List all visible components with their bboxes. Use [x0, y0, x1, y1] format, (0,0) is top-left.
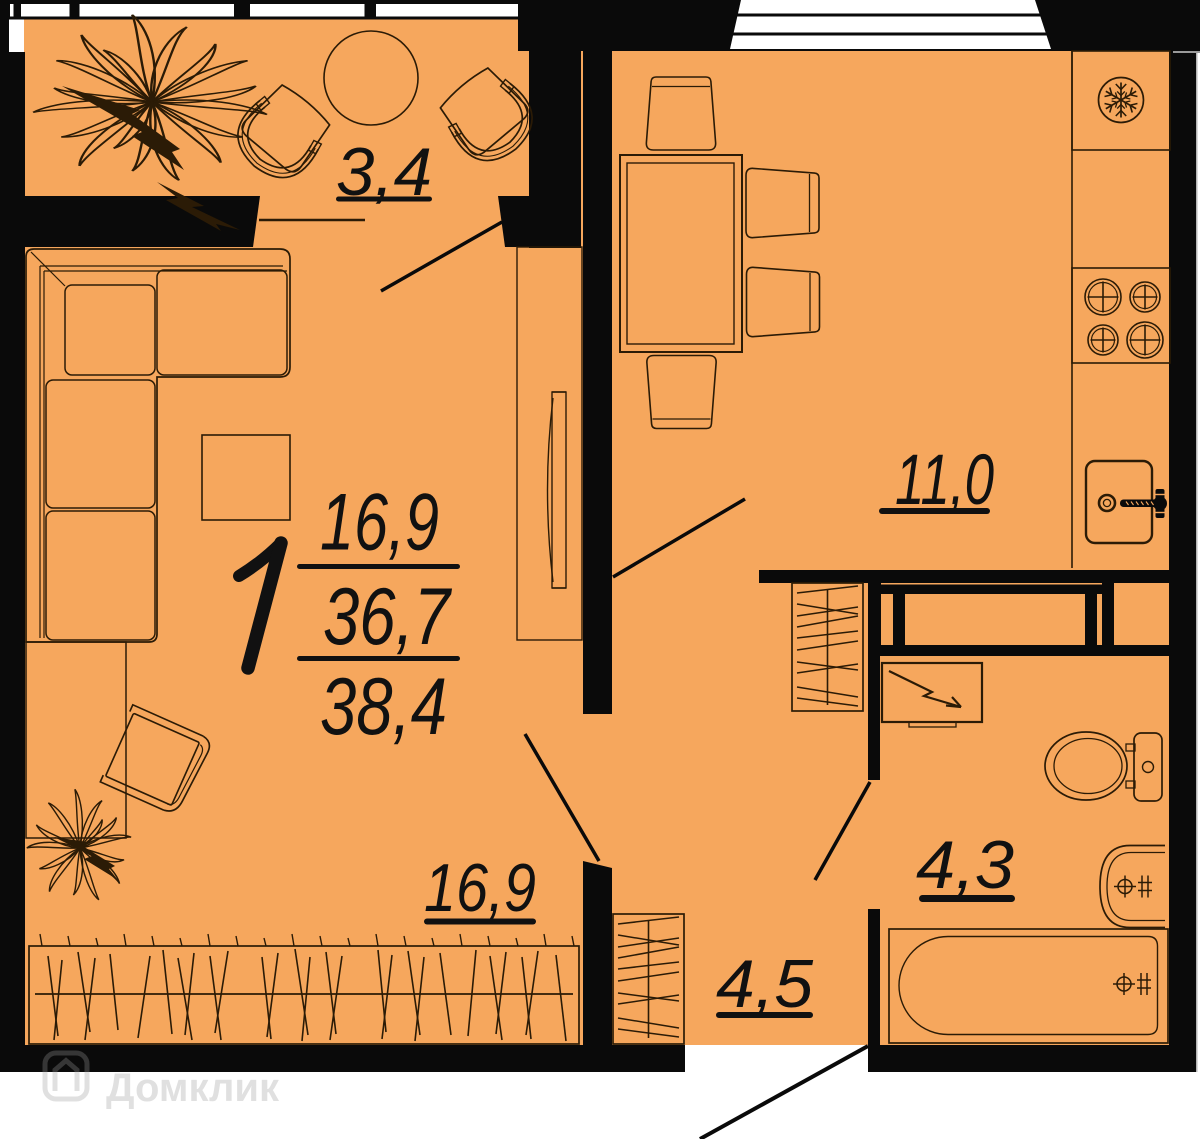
svg-text:4,5: 4,5	[716, 946, 813, 1022]
svg-text:Домклик: Домклик	[106, 1066, 280, 1110]
svg-text:16,9: 16,9	[320, 478, 439, 568]
svg-text:4,3: 4,3	[916, 827, 1014, 903]
svg-text:36,7: 36,7	[323, 572, 452, 662]
svg-text:16,9: 16,9	[424, 850, 536, 926]
svg-text:38,4: 38,4	[320, 662, 447, 752]
